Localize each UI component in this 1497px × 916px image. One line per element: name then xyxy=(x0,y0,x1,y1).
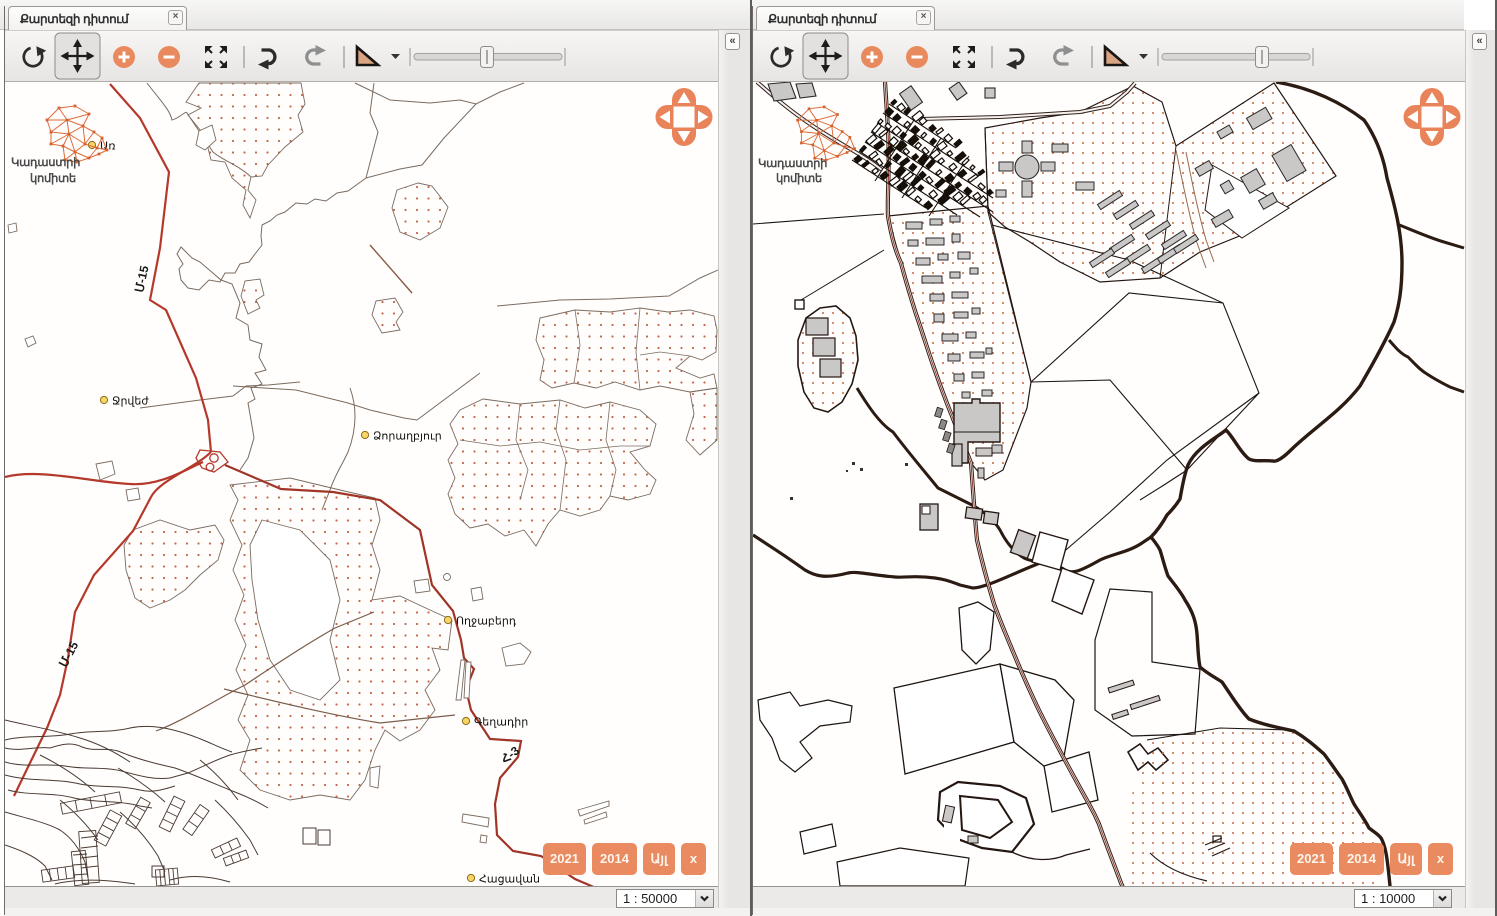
svg-text:Հացավան: Հացավան xyxy=(479,874,540,886)
svg-text:Ձորաղբյուր: Ձորաղբյուր xyxy=(373,431,442,443)
svg-text:կոմիտե: կոմիտե xyxy=(30,172,76,185)
svg-text:Գեղադիր: Գեղադիր xyxy=(474,717,528,729)
svg-text:Ողջաբերդ: Ողջաբերդ xyxy=(456,616,517,628)
svg-text:կոմիտե: կոմիտե xyxy=(776,172,822,185)
svg-text:Կադաստրի: Կադաստրի xyxy=(758,157,827,170)
svg-text:Ջրվեժ: Ջրվեժ xyxy=(112,396,149,408)
svg-text:Կադաստրի: Կադաստրի xyxy=(11,156,80,169)
